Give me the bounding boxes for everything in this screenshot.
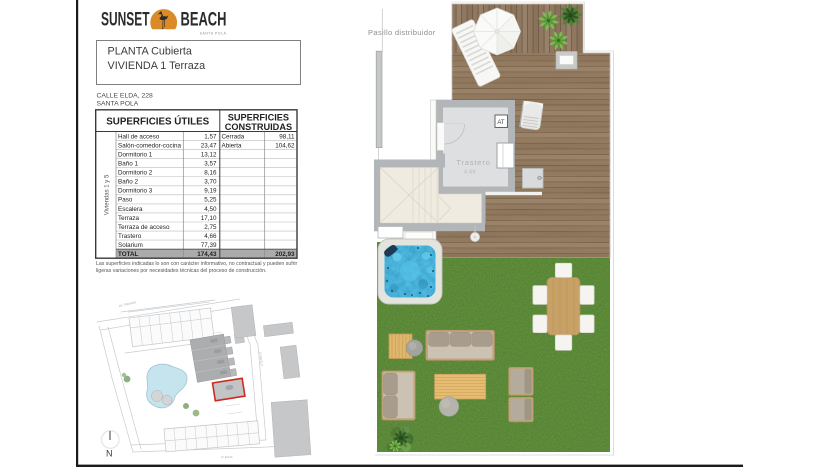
svg-text:4.66: 4.66 — [464, 170, 476, 176]
svg-text:Viviendas 1 y 5: Viviendas 1 y 5 — [105, 174, 111, 215]
svg-text:5,25: 5,25 — [204, 197, 217, 204]
svg-text:ligeras variaciones por necesi: ligeras variaciones por necesidades técn… — [96, 268, 266, 274]
svg-text:23,47: 23,47 — [201, 142, 217, 149]
svg-text:BEACH: BEACH — [181, 9, 227, 31]
svg-text:Dormitorio 1: Dormitorio 1 — [118, 152, 153, 159]
svg-text:4,66: 4,66 — [204, 233, 217, 240]
svg-text:2,75: 2,75 — [204, 224, 217, 231]
svg-text:77,39: 77,39 — [201, 242, 217, 249]
svg-text:Trastero: Trastero — [118, 233, 142, 240]
svg-text:Dormitorio 3: Dormitorio 3 — [118, 188, 153, 195]
svg-text:98,11: 98,11 — [279, 133, 295, 140]
svg-text:174,43: 174,43 — [197, 251, 217, 258]
svg-text:13,12: 13,12 — [201, 152, 217, 159]
svg-text:AT: AT — [497, 120, 505, 126]
svg-text:Hall de acceso: Hall de acceso — [118, 133, 160, 140]
svg-text:Terraza: Terraza — [118, 215, 139, 222]
svg-text:Abierta: Abierta — [222, 142, 242, 149]
svg-text:VIVIENDA 1 Terraza: VIVIENDA 1 Terraza — [108, 60, 206, 72]
svg-text:Escalera: Escalera — [118, 206, 143, 213]
svg-text:Baño 1: Baño 1 — [118, 161, 138, 168]
svg-text:Trastero: Trastero — [456, 158, 490, 167]
svg-text:Salón-comedor-cocina: Salón-comedor-cocina — [118, 142, 181, 149]
svg-text:Cerrada: Cerrada — [222, 133, 245, 140]
svg-text:4,50: 4,50 — [204, 206, 217, 213]
svg-text:Paso: Paso — [118, 197, 133, 204]
svg-text:Terraza de acceso: Terraza de acceso — [118, 224, 170, 231]
svg-text:9,19: 9,19 — [204, 188, 217, 195]
svg-text:Pasillo distribuidor: Pasillo distribuidor — [368, 28, 436, 37]
svg-text:202,93: 202,93 — [275, 251, 295, 258]
svg-text:N: N — [106, 449, 113, 459]
svg-text:3,70: 3,70 — [204, 179, 217, 186]
svg-text:Dormitorio 2: Dormitorio 2 — [118, 170, 153, 177]
svg-text:Solarium: Solarium — [118, 242, 143, 249]
svg-text:SUPERFICIES ÚTILES: SUPERFICIES ÚTILES — [106, 116, 209, 128]
svg-text:C/ ELDA: C/ ELDA — [221, 455, 233, 459]
svg-text:SANTA POLA: SANTA POLA — [200, 32, 227, 36]
svg-text:3,57: 3,57 — [204, 161, 217, 168]
svg-text:8,16: 8,16 — [204, 170, 217, 177]
svg-text:104,62: 104,62 — [275, 142, 295, 149]
svg-text:TOTAL: TOTAL — [118, 251, 139, 258]
svg-text:CONSTRUIDAS: CONSTRUIDAS — [225, 122, 292, 132]
svg-text:1,57: 1,57 — [204, 133, 217, 140]
svg-text:Las superficies indicadas lo s: Las superficies indicadas lo son con car… — [96, 261, 298, 267]
svg-text:17,10: 17,10 — [201, 215, 217, 222]
svg-text:Baño 2: Baño 2 — [118, 179, 138, 186]
svg-text:SANTA POLA: SANTA POLA — [97, 101, 139, 108]
svg-text:PLANTA Cubierta: PLANTA Cubierta — [108, 46, 192, 58]
svg-text:CALLE ELDA, 228: CALLE ELDA, 228 — [97, 93, 154, 100]
svg-text:SUNSET: SUNSET — [101, 9, 150, 31]
